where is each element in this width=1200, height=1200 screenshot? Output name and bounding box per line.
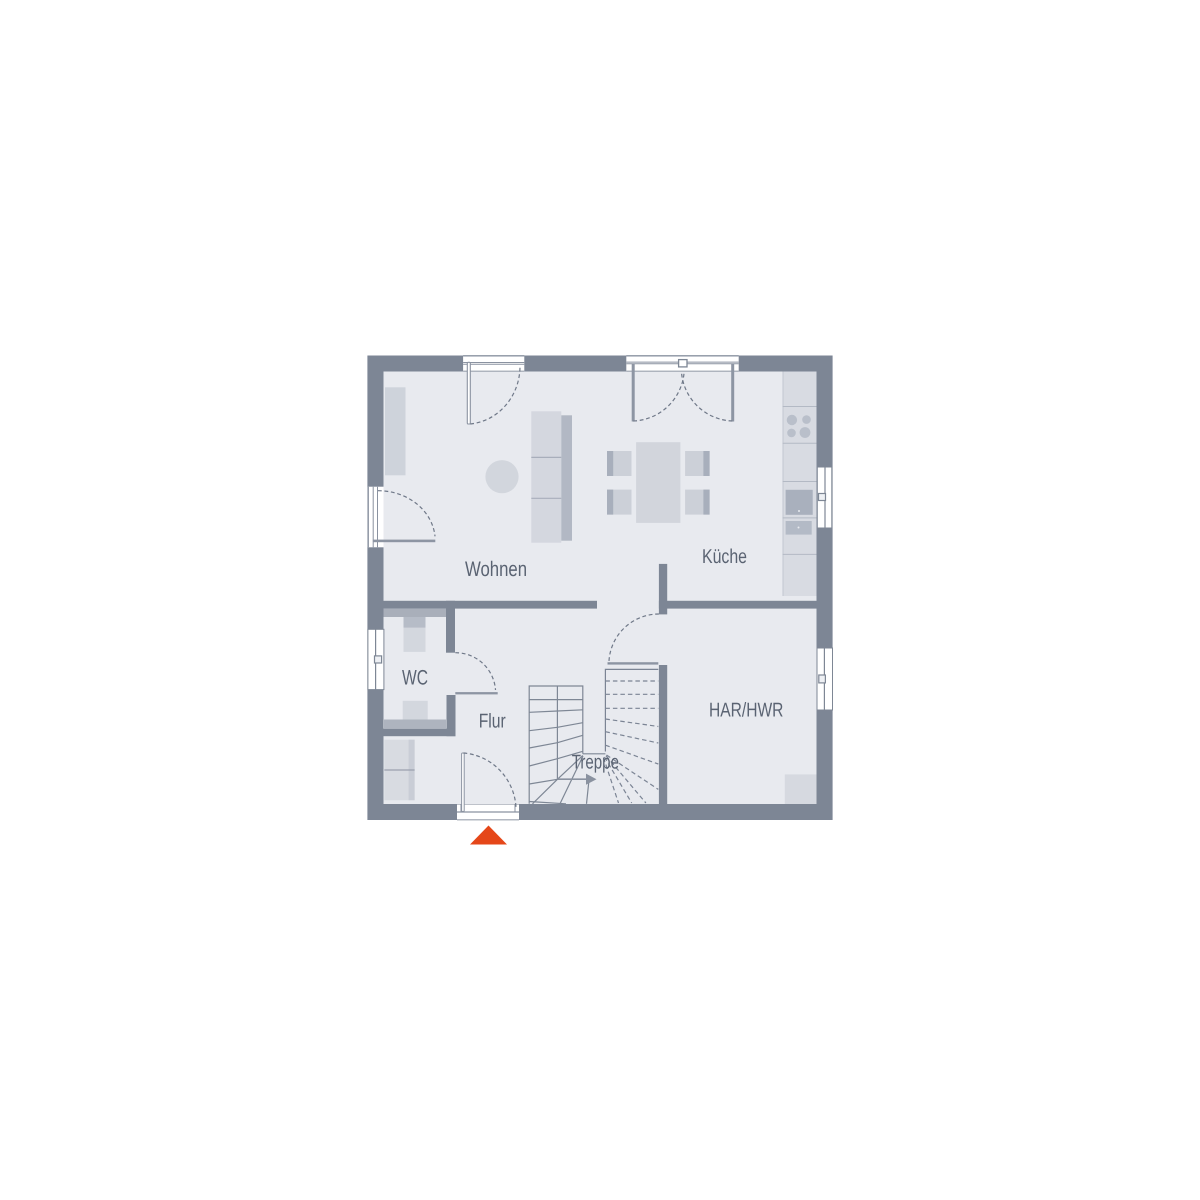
svg-text:Küche: Küche: [702, 546, 747, 568]
svg-text:WC: WC: [402, 667, 428, 690]
svg-text:HAR/HWR: HAR/HWR: [709, 700, 783, 722]
svg-text:Flur: Flur: [479, 711, 506, 733]
svg-text:Wohnen: Wohnen: [465, 558, 527, 581]
svg-text:Treppe: Treppe: [572, 752, 619, 774]
